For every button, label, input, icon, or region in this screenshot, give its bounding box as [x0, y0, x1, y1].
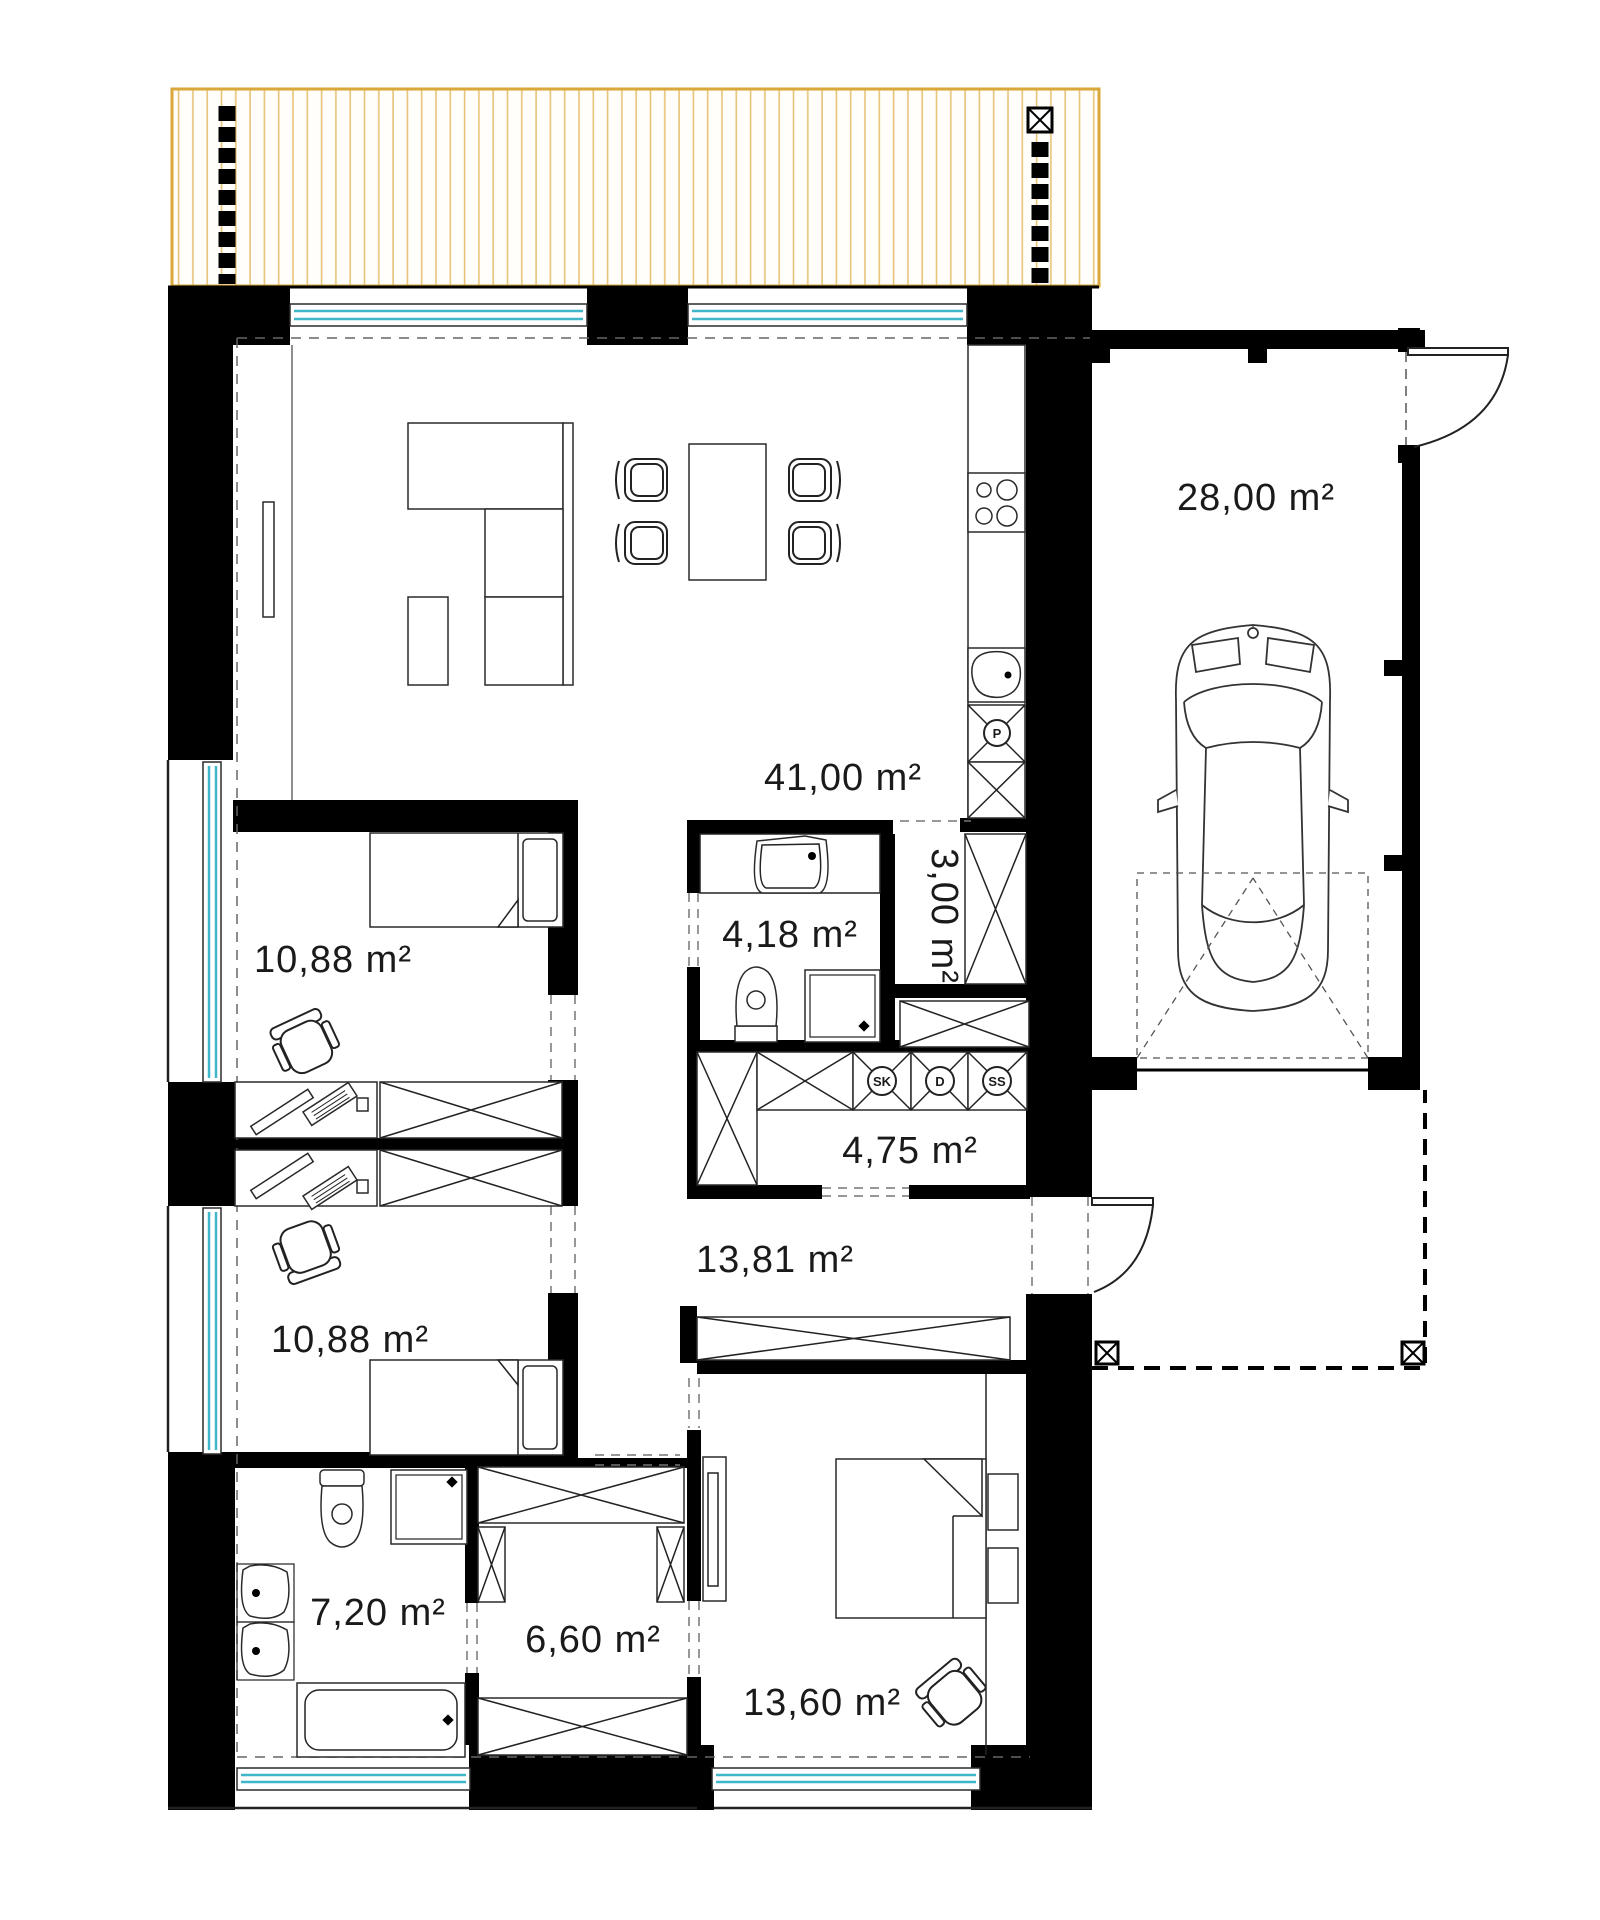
porch-post-icon: [1402, 1342, 1424, 1364]
garage-walls: [1092, 328, 1425, 1090]
room-label-bedroom2: 10,88 m²: [271, 1319, 429, 1361]
window-bedroom2: [203, 1208, 221, 1454]
window-bathroom: [237, 1768, 470, 1790]
room-label-bathroom-main: 7,20 m²: [310, 1592, 446, 1634]
room-label-garage: 28,00 m²: [1177, 477, 1335, 519]
tv-icon: [263, 502, 274, 617]
window-top-left: [290, 304, 587, 326]
bathtub-icon: [297, 1683, 465, 1757]
sink-icon: [754, 836, 828, 893]
room-label-bedroom3: 13,60 m²: [743, 1682, 901, 1724]
nightstand-icon: [988, 1548, 1018, 1603]
cooktop-icon: [968, 473, 1025, 532]
room-label-hall: 13,81 m²: [696, 1239, 854, 1281]
floor-plan-page: P: [0, 0, 1600, 1920]
kitchen-counter-icon: P: [968, 345, 1025, 818]
car-icon: [1158, 625, 1348, 1011]
toilet-icon: [735, 967, 777, 1042]
shower-icon: [805, 970, 880, 1042]
appliance-tag-sk: SK: [873, 1074, 892, 1089]
room-label-pantry: 3,00 m²: [923, 848, 965, 984]
room-label-bathroom-small: 4,18 m²: [722, 914, 858, 956]
bed-single-icon: [370, 1360, 563, 1455]
room-label-wardrobe: 6,60 m²: [525, 1619, 661, 1661]
room-label-bedroom1: 10,88 m²: [254, 939, 412, 981]
bed-single-icon: [370, 833, 563, 927]
bedroom2-furniture: [235, 1150, 563, 1455]
desk-icon: [235, 1082, 377, 1138]
floor-plan-canvas: P: [0, 0, 1600, 1920]
mirror-cabinet-icon: [703, 1457, 726, 1601]
dining-set-icon: [616, 444, 840, 580]
porch-outline: [1092, 1090, 1425, 1368]
window-bedroom3: [712, 1768, 980, 1790]
wardrobe-icon: [380, 1150, 562, 1206]
sink-icon: [237, 1564, 294, 1622]
entry-door-icon[interactable]: [1092, 1198, 1153, 1292]
appliance-tag-p: P: [993, 726, 1002, 741]
desk-icon: [235, 1150, 377, 1209]
sink-icon: [237, 1622, 294, 1680]
appliance-tag-ss: SS: [988, 1074, 1006, 1089]
pergola-terrace: [172, 89, 1099, 286]
appliance-tag-d: D: [935, 1074, 944, 1089]
garage-content: [1137, 625, 1368, 1058]
sofa-icon: [408, 423, 573, 685]
wardrobe-room-cabinets: [478, 1467, 687, 1755]
bed-double-icon: [836, 1459, 986, 1618]
room-label-living: 41,00 m²: [764, 757, 922, 799]
nightstand-icon: [988, 1474, 1018, 1530]
window-top-right: [688, 304, 967, 326]
desk-chair-icon: [265, 1006, 344, 1081]
chair-icon: [911, 1654, 993, 1735]
wardrobe-icon: [380, 1082, 562, 1138]
washer-cabinet-icon: P: [968, 705, 1025, 762]
desk-chair-icon: [269, 1215, 346, 1287]
hall-wardrobe-icon: [697, 1317, 1010, 1360]
room-label-corridor: 4,75 m²: [842, 1130, 978, 1172]
porch-post-icon: [1096, 1342, 1118, 1364]
kitchen-cabinet-icon: [968, 762, 1025, 818]
window-bedroom1: [203, 762, 221, 1082]
shower-icon: [391, 1470, 467, 1544]
bedroom1-furniture: [235, 833, 563, 1138]
toilet-icon: [320, 1470, 364, 1547]
kitchen-sink-icon: [968, 648, 1025, 702]
garage-door-swing-dashed: [1137, 873, 1368, 1058]
roof-post-icon: [1028, 108, 1052, 132]
garage-side-door-icon[interactable]: [1406, 348, 1508, 447]
